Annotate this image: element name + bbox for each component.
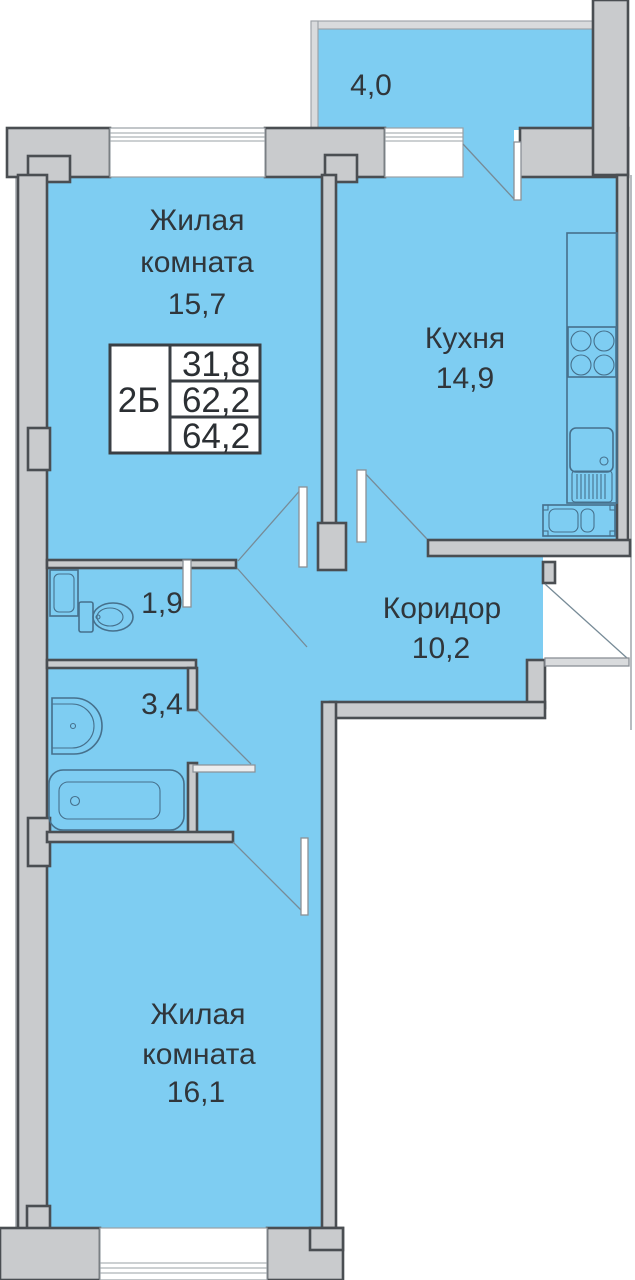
wall-bath-right-lower bbox=[188, 763, 197, 833]
kitchen-name: Кухня bbox=[425, 322, 505, 355]
floor-plan-svg: Жилая комната 15,7 Кухня 14,9 4,0 Коридо… bbox=[0, 0, 635, 1280]
wall-wc-top bbox=[47, 560, 236, 568]
living2-area: 16,1 bbox=[167, 1076, 225, 1109]
floor-plan-page: Жилая комната 15,7 Кухня 14,9 4,0 Коридо… bbox=[0, 0, 635, 1280]
living-area-value: 31,8 bbox=[182, 345, 250, 384]
pilaster-bottom-right bbox=[310, 1228, 343, 1250]
pilaster-left-1 bbox=[28, 428, 50, 470]
info-table: 2Б 31,8 62,2 64,2 bbox=[110, 345, 260, 456]
wall-living2-right bbox=[322, 702, 336, 1232]
apartment-area-value: 62,2 bbox=[182, 381, 250, 420]
wall-bath-bottom bbox=[47, 832, 233, 842]
corridor-name: Коридор bbox=[383, 592, 501, 625]
wall-corridor-bottom bbox=[330, 702, 545, 718]
wall-top-right-vertical bbox=[593, 0, 628, 175]
wall-bottom-left-block bbox=[0, 1228, 100, 1280]
balcony-area-label: 4,0 bbox=[350, 69, 392, 102]
wall-kitchen-right bbox=[617, 175, 628, 542]
window-kitchen bbox=[385, 128, 463, 177]
kitchen-area: 14,9 bbox=[436, 362, 494, 395]
window-living1 bbox=[110, 128, 265, 177]
total-area-value: 64,2 bbox=[182, 417, 250, 456]
living2-name-line2: комната bbox=[142, 1038, 256, 1071]
living1-name-line1: Жилая bbox=[150, 204, 245, 237]
bathroom-area-label: 3,4 bbox=[141, 688, 183, 721]
unit-label: 2Б bbox=[118, 381, 160, 420]
door-entrance bbox=[545, 584, 629, 666]
living2-name-line1: Жилая bbox=[151, 998, 246, 1031]
wall-wc-bottom bbox=[47, 660, 196, 668]
wall-entrance-jamb bbox=[543, 562, 555, 583]
partition-bath-corner bbox=[193, 765, 255, 772]
window-living2 bbox=[100, 1228, 267, 1280]
living1-name-line2: комната bbox=[140, 246, 254, 279]
wall-bath-right-stub bbox=[188, 668, 197, 710]
wc-area-label: 1,9 bbox=[141, 587, 183, 620]
corridor-area: 10,2 bbox=[412, 632, 470, 665]
wall-room-divider bbox=[322, 175, 336, 525]
wall-divider-pillar bbox=[318, 523, 346, 570]
wall-kitchen-bottom bbox=[428, 540, 630, 556]
living1-area: 15,7 bbox=[168, 288, 226, 321]
wall-left bbox=[18, 175, 47, 1232]
